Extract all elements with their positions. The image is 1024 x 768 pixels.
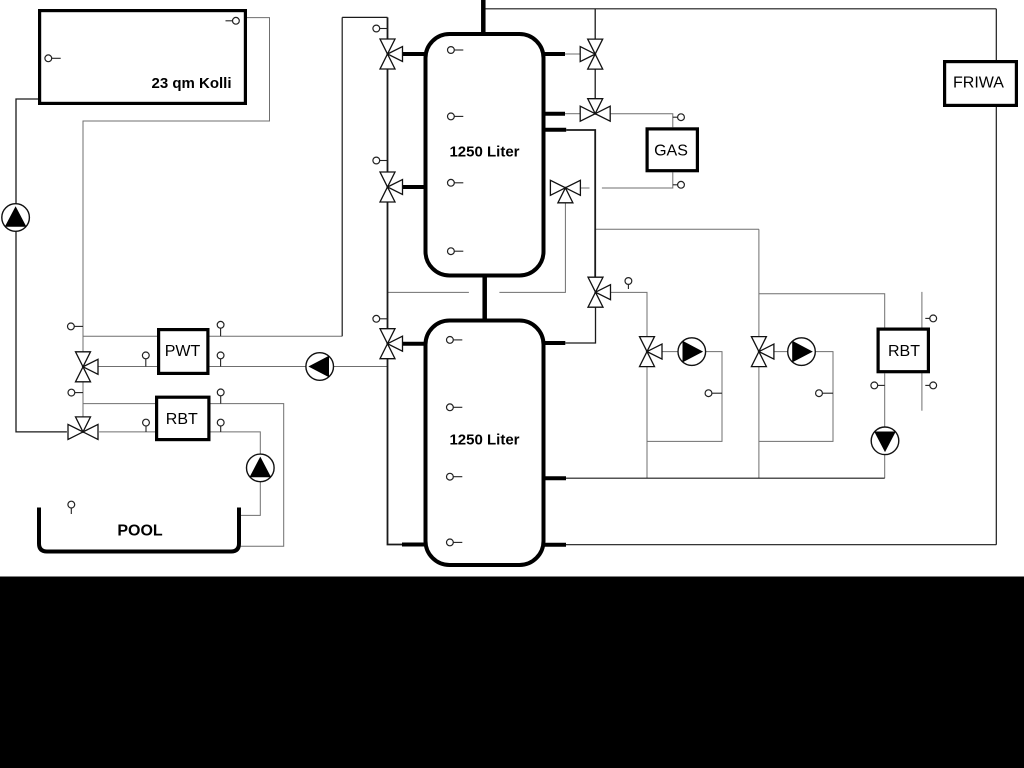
- svg-text:POOL: POOL: [117, 522, 163, 539]
- svg-text:23 qm Kolli: 23 qm Kolli: [151, 75, 231, 92]
- svg-text:1250 Liter: 1250 Liter: [449, 144, 519, 161]
- svg-text:RBT: RBT: [166, 411, 198, 428]
- svg-text:RBT: RBT: [888, 343, 920, 360]
- svg-text:PWT: PWT: [165, 343, 201, 360]
- svg-text:FRIWA: FRIWA: [953, 75, 1004, 92]
- svg-text:1250 Liter: 1250 Liter: [449, 432, 519, 449]
- svg-text:GAS: GAS: [654, 143, 688, 160]
